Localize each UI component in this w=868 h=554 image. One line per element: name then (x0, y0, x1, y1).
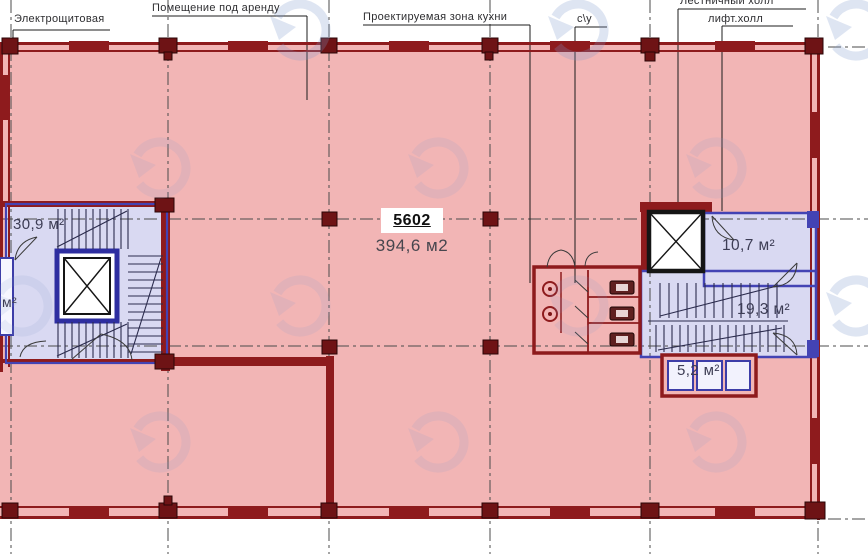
area-shaft-box: 5,2 м² (677, 362, 720, 379)
unit-number-chip: 5602 (381, 208, 443, 233)
label-lift-hall: лифт.холл (708, 13, 763, 25)
elevator-left-icon (57, 251, 117, 321)
label-rental-space: Помещение под аренду (152, 2, 280, 14)
floor-plan-canvas (0, 0, 868, 554)
label-stair-hall: Лестничный холл (680, 0, 774, 7)
unit-area: 394,6 м2 (362, 236, 462, 256)
area-stair-block-left: 30,9 м² (13, 216, 64, 233)
unit-number: 5602 (393, 212, 431, 230)
elevator-right-icon (649, 212, 703, 271)
label-kitchen-zone: Проектируемая зона кухни (363, 11, 507, 23)
label-electrical-room: Электрощитовая (14, 13, 105, 25)
area-left-edge-partial: м² (2, 294, 17, 311)
area-lift-lobby: 10,7 м² (722, 237, 775, 254)
label-wc: с\у (577, 13, 592, 25)
watermark-logo-icon (820, 0, 868, 66)
floor-plan: Электрощитовая Помещение под аренду Прое… (0, 0, 868, 554)
area-stair-block-right: 19,3 м² (737, 301, 790, 318)
watermark-logo-icon (820, 270, 868, 341)
